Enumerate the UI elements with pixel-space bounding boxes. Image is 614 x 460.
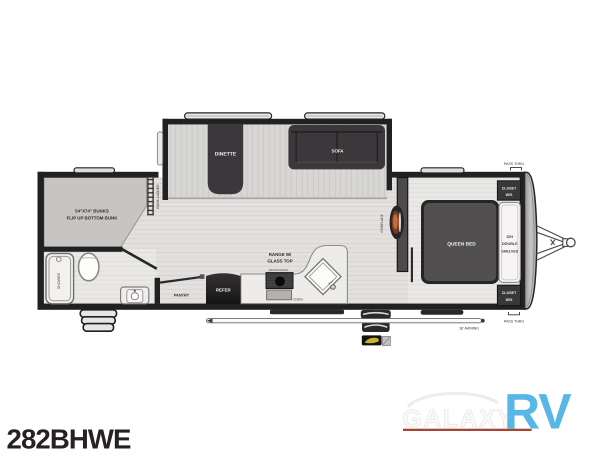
svg-text:BUNK LADDER: BUNK LADDER <box>156 184 160 209</box>
svg-text:SHOWER: SHOWER <box>57 273 61 290</box>
svg-text:QUEEN BED: QUEEN BED <box>447 241 476 247</box>
svg-text:GLASS TOP: GLASS TOP <box>267 258 292 263</box>
svg-text:W/S: W/S <box>506 193 513 197</box>
svg-text:PANTRY: PANTRY <box>174 293 190 298</box>
svg-text:FLIP UP BOTTOM BUNK: FLIP UP BOTTOM BUNK <box>67 216 119 221</box>
svg-text:O/H: O/H <box>507 235 514 239</box>
svg-text:W/S: W/S <box>506 298 513 302</box>
svg-text:REFER: REFER <box>216 288 232 293</box>
svg-text:RANGE W/: RANGE W/ <box>269 252 292 257</box>
svg-text:(MICROWAVE): (MICROWAVE) <box>269 268 289 272</box>
svg-text:SOFA: SOFA <box>332 148 345 153</box>
svg-text:54"X74" BUNKS: 54"X74" BUNKS <box>75 209 109 214</box>
svg-text:PASS THRU: PASS THRU <box>504 162 525 166</box>
svg-text:FIREPLACE: FIREPLACE <box>380 213 384 232</box>
svg-text:SHELVES: SHELVES <box>501 250 518 254</box>
svg-text:CLOSET: CLOSET <box>502 291 517 295</box>
svg-text:GALAXY: GALAXY <box>403 405 516 433</box>
svg-text:PASS THRU: PASS THRU <box>504 319 525 323</box>
svg-text:CLOSET: CLOSET <box>502 186 517 190</box>
svg-text:282BHWE: 282BHWE <box>7 424 132 455</box>
svg-text:DOUBLE: DOUBLE <box>502 242 518 246</box>
svg-text:DINETTE: DINETTE <box>215 151 237 157</box>
svg-text:18' AWNING: 18' AWNING <box>459 326 479 330</box>
svg-text:OVEN: OVEN <box>293 298 303 302</box>
